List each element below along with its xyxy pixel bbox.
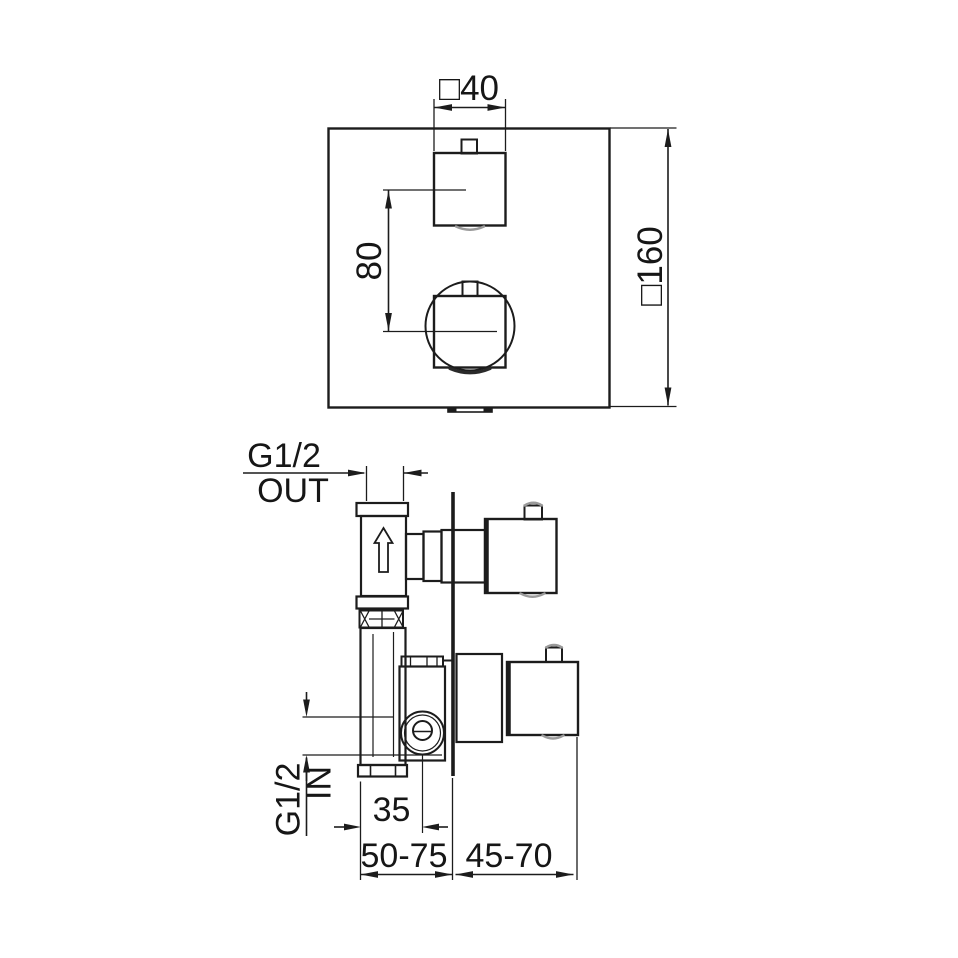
dimension-text-50-75: 50-75 (361, 837, 448, 875)
drawing-background (0, 0, 958, 958)
dimension-text-80: 80 (350, 242, 389, 281)
dimension-text-160: □160 (631, 226, 670, 306)
outlet-port-text: OUT (257, 472, 329, 510)
technical-drawing-page: □40 □160 80 (0, 0, 958, 958)
technical-drawing-canvas: □40 □160 80 (0, 0, 958, 958)
outlet-thread-text: G1/2 (247, 437, 321, 475)
plate-bottom-tab-end-left (448, 408, 457, 413)
dimension-depth-behind-wall: 50-75 (361, 837, 453, 878)
dimension-text-40: □40 (439, 69, 499, 108)
dimension-text-45-70: 45-70 (466, 837, 553, 875)
inlet-port-text: IN (301, 766, 339, 800)
plate-bottom-tab-end-right (484, 408, 493, 413)
dimension-text-35: 35 (373, 791, 411, 829)
